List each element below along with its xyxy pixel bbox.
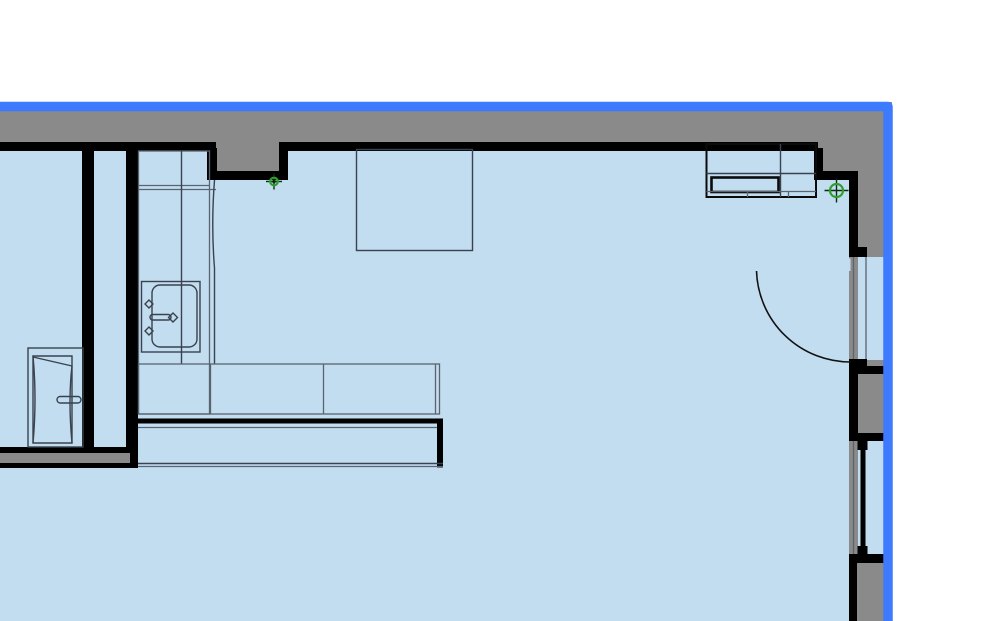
window-sash <box>861 448 866 548</box>
wall-top-left <box>0 142 216 151</box>
pier-bottom-edge <box>849 433 888 441</box>
door-top-jamb <box>849 247 867 257</box>
side-room-bottom-wall-core <box>0 453 130 463</box>
window-node-top <box>858 441 868 450</box>
floorplan-viewport <box>0 0 1000 621</box>
right-wall-upper <box>849 171 858 257</box>
lower-wall-inner-face <box>849 554 857 621</box>
wall-recess <box>216 142 279 172</box>
hallway[interactable] <box>94 151 126 448</box>
door-leaf[interactable] <box>753 259 851 272</box>
side-room-right-wall <box>82 142 94 454</box>
floorplan-canvas[interactable] <box>0 0 1000 621</box>
window-node-bottom <box>858 546 868 555</box>
main-room[interactable] <box>138 151 849 621</box>
kitchen-wall <box>126 142 138 468</box>
pier-inner-face <box>849 366 858 441</box>
main-room-left-extension[interactable] <box>0 468 138 621</box>
